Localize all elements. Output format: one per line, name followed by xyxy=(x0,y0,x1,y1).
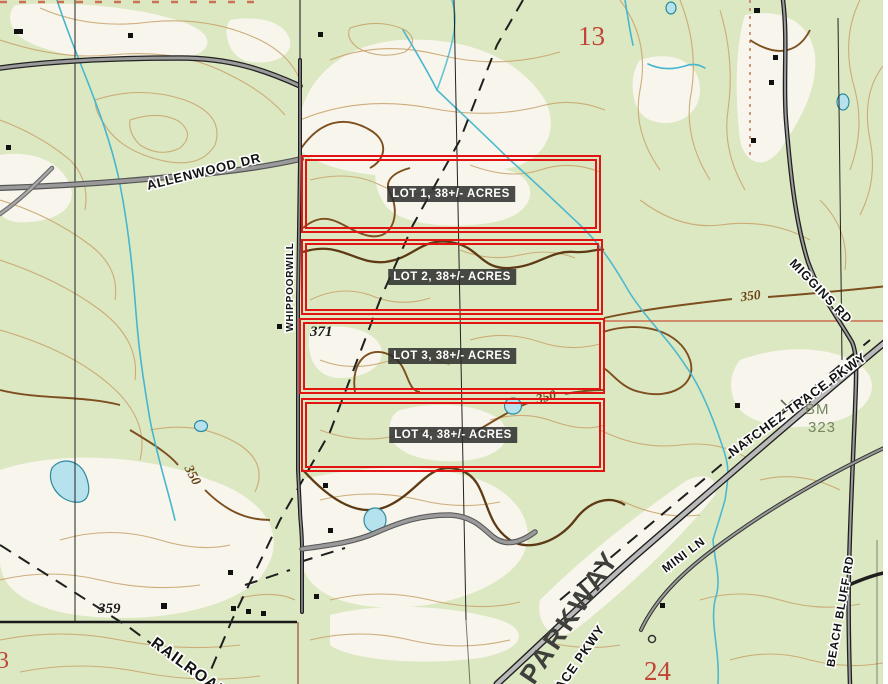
lot-3-outline: LOT 3, 38+/- ACRES xyxy=(299,318,605,394)
road-label-whippoorwill: WHIPPOORWILL xyxy=(285,242,296,331)
benchmark-elevation: 323 xyxy=(808,419,836,436)
section-number-13: 13 xyxy=(578,21,605,51)
section-number-edge: 3 xyxy=(0,648,9,674)
lot-1-label: LOT 1, 38+/- ACRES xyxy=(387,186,515,202)
image-edge-white-strip xyxy=(883,0,888,684)
benchmark-abbr: BM xyxy=(805,401,830,418)
spot-elevation-359: 359 xyxy=(97,601,121,617)
section-number-24: 24 xyxy=(644,656,672,684)
lot-2-outline: LOT 2, 38+/- ACRES xyxy=(301,239,603,315)
lot-3-label: LOT 3, 38+/- ACRES xyxy=(388,348,516,364)
lot-1-outline: LOT 1, 38+/- ACRES xyxy=(301,155,601,233)
lot-2-label: LOT 2, 38+/- ACRES xyxy=(388,269,516,285)
railroad-label: RAILROAD xyxy=(148,634,231,684)
topo-map-screenshot: ALLENWOOD DR WHIPPOORWILL MIGGINS RD NAT… xyxy=(0,0,888,684)
road-label-beach-bluff: BEACH BLUFF RD xyxy=(825,555,856,668)
contour-label-350-east: 350 xyxy=(738,287,761,305)
lot-4-outline: LOT 4, 38+/- ACRES xyxy=(301,398,605,472)
lot-4-label: LOT 4, 38+/- ACRES xyxy=(389,427,517,443)
